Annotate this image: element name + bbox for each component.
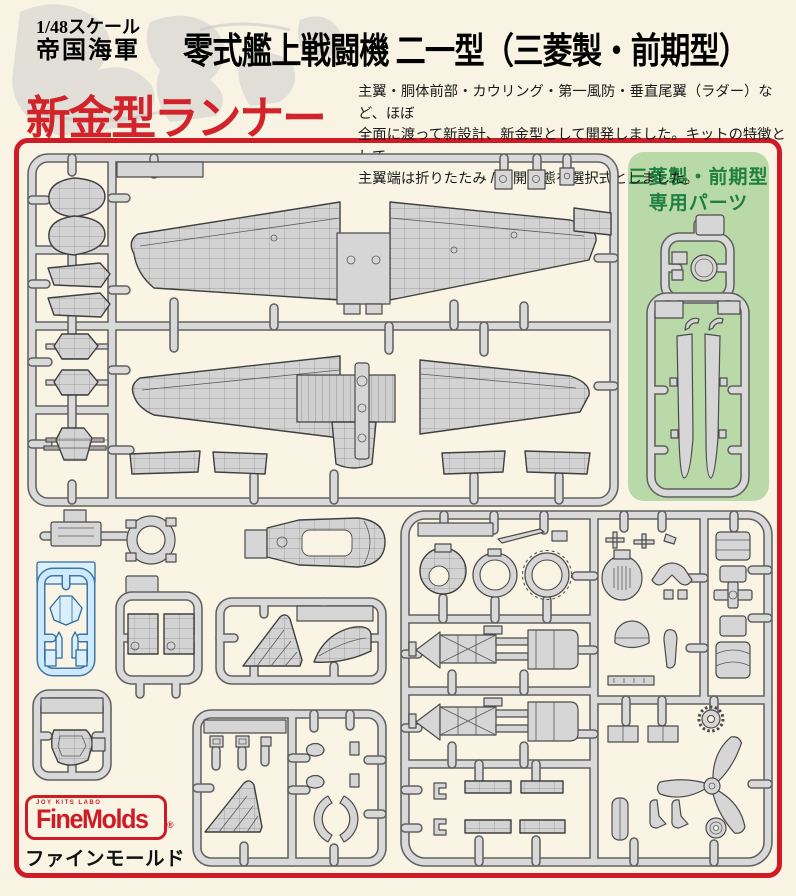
header: 1/48スケール 帝国海軍 零式艦上戦闘機 二一型（三菱製・前期型） 新金型ラン… bbox=[0, 0, 796, 138]
runner-showcase-box: 三菱製・前期型 専用パーツ bbox=[14, 138, 782, 878]
description-line-1: 主翼・胴体前部・カウリング・第一風防・垂直尾翼（ラダー）など、ほぼ bbox=[358, 84, 773, 122]
product-description: 主翼・胴体前部・カウリング・第一風防・垂直尾翼（ラダー）など、ほぼ 全面に渡って… bbox=[358, 82, 786, 191]
scale-block: 1/48スケール 帝国海軍 bbox=[36, 18, 140, 64]
registered-trademark: ® bbox=[167, 820, 174, 830]
clear-parts-sprue-illustration bbox=[37, 562, 95, 672]
promo-page: 1/48スケール 帝国海軍 零式艦上戦闘機 二一型（三菱製・前期型） 新金型ラン… bbox=[0, 0, 796, 896]
fuselage-front-part-illustration bbox=[245, 518, 385, 567]
small-parts-sprue-illustration bbox=[120, 576, 198, 694]
windscreen-detail-sprue-illustration bbox=[197, 714, 382, 862]
finemolds-logo-box: JOY KITS LABO FineMolds bbox=[25, 795, 167, 840]
cowl-ring-part-illustration bbox=[44, 510, 176, 564]
propeller-part-illustration bbox=[658, 733, 749, 836]
detail-parts-sprue-illustration bbox=[405, 515, 768, 862]
new-mold-runner-heading: 新金型ランナー bbox=[26, 82, 325, 148]
product-title: 零式艦上戦闘機 二一型（三菱製・前期型） bbox=[183, 22, 748, 74]
exclusive-parts-label-line2: 専用パーツ bbox=[628, 191, 769, 217]
finemolds-logo: JOY KITS LABO FineMolds ® ファインモールド bbox=[25, 795, 195, 871]
exclusive-parts-panel: 三菱製・前期型 専用パーツ bbox=[628, 152, 769, 501]
description-line-2: 全面に渡って新設計、新金型として開発しました。キットの特徴として、 bbox=[358, 127, 786, 165]
main-wing-sprue-illustration bbox=[32, 158, 614, 502]
navy-label: 帝国海軍 bbox=[36, 38, 140, 64]
description-line-3: 主翼端は折りたたみ / 展開状態を選択式としました。 bbox=[358, 171, 699, 187]
canopy-sprue-illustration bbox=[220, 602, 382, 680]
cowling-sprue-illustration bbox=[37, 694, 107, 776]
logo-brand-japanese: ファインモールド bbox=[25, 842, 195, 871]
logo-brand-text: FineMolds bbox=[36, 806, 148, 834]
scale-label: 1/48スケール bbox=[36, 18, 140, 38]
